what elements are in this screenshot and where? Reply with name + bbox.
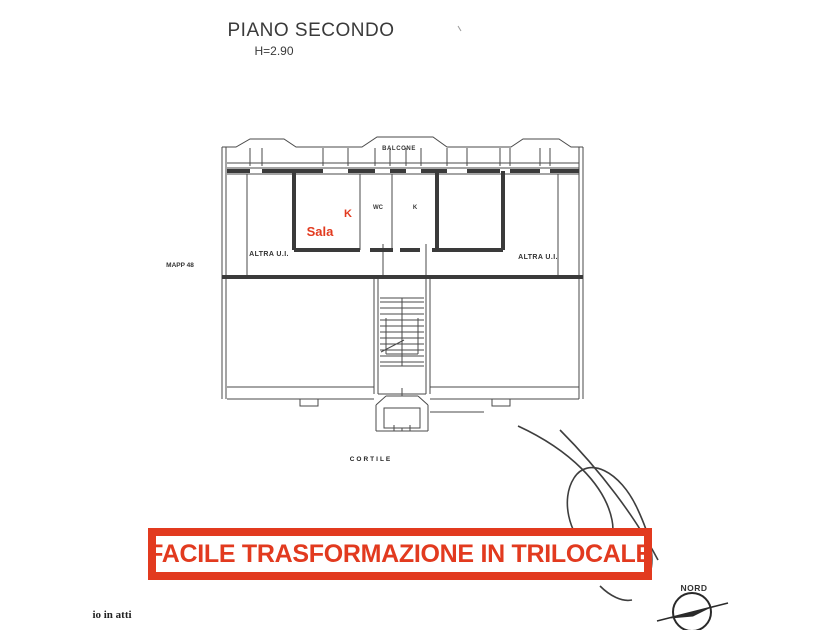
page-title: PIANO SECONDO (228, 21, 395, 40)
promo-banner-text: FACILE TRASFORMAZIONE IN TRILOCALE (156, 540, 644, 569)
label-cortile: CORTILE (350, 457, 393, 464)
label-altra-ui-left: ALTRA U.I. (249, 251, 289, 258)
footer-text-fragment: io in atti (92, 610, 131, 621)
floor-plan-page: PIANO SECONDO H=2.90 BALCONE Sala K WC K… (0, 0, 824, 630)
label-kitchen-red: K (344, 209, 352, 220)
north-compass-icon (657, 593, 728, 630)
floor-height-note: H=2.90 (254, 45, 293, 57)
label-kitchen-small: K (413, 205, 417, 211)
label-balcone: BALCONE (382, 146, 416, 152)
promo-banner-inner: FACILE TRASFORMAZIONE IN TRILOCALE (156, 536, 644, 572)
promo-banner: FACILE TRASFORMAZIONE IN TRILOCALE (148, 528, 652, 580)
label-nord: NORD (680, 584, 707, 593)
label-wc: WC (373, 205, 383, 211)
label-mapp: MAPP 48 (166, 263, 194, 270)
label-sala: Sala (307, 225, 334, 238)
label-altra-ui-right: ALTRA U.I. (518, 254, 558, 261)
